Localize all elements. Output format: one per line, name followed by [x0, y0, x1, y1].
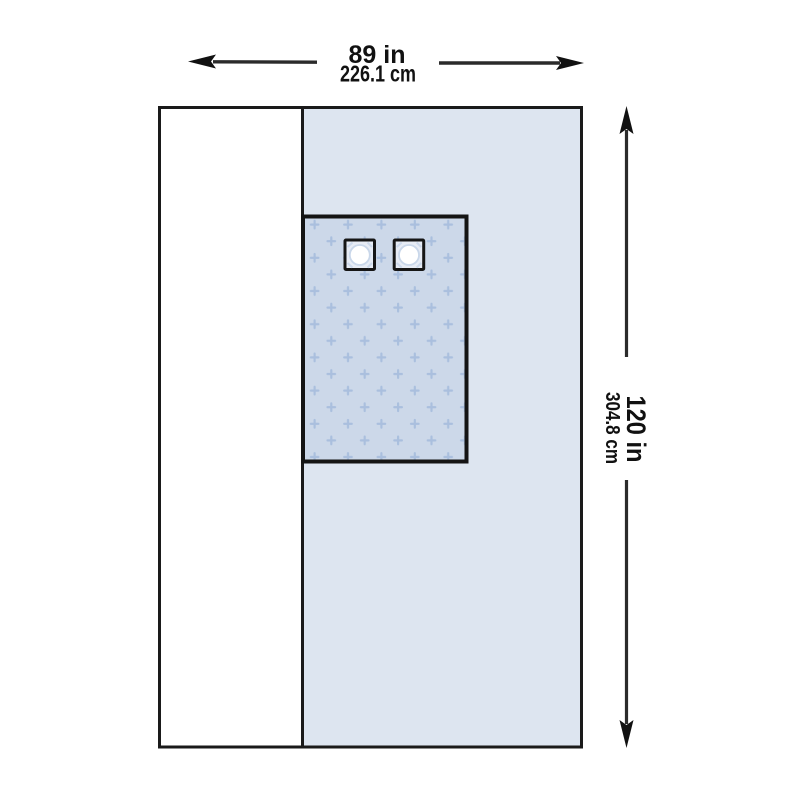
svg-text:304.8 cm: 304.8 cm: [601, 392, 623, 464]
svg-text:226.1 cm: 226.1 cm: [340, 61, 416, 87]
svg-text:120 in: 120 in: [621, 396, 651, 463]
